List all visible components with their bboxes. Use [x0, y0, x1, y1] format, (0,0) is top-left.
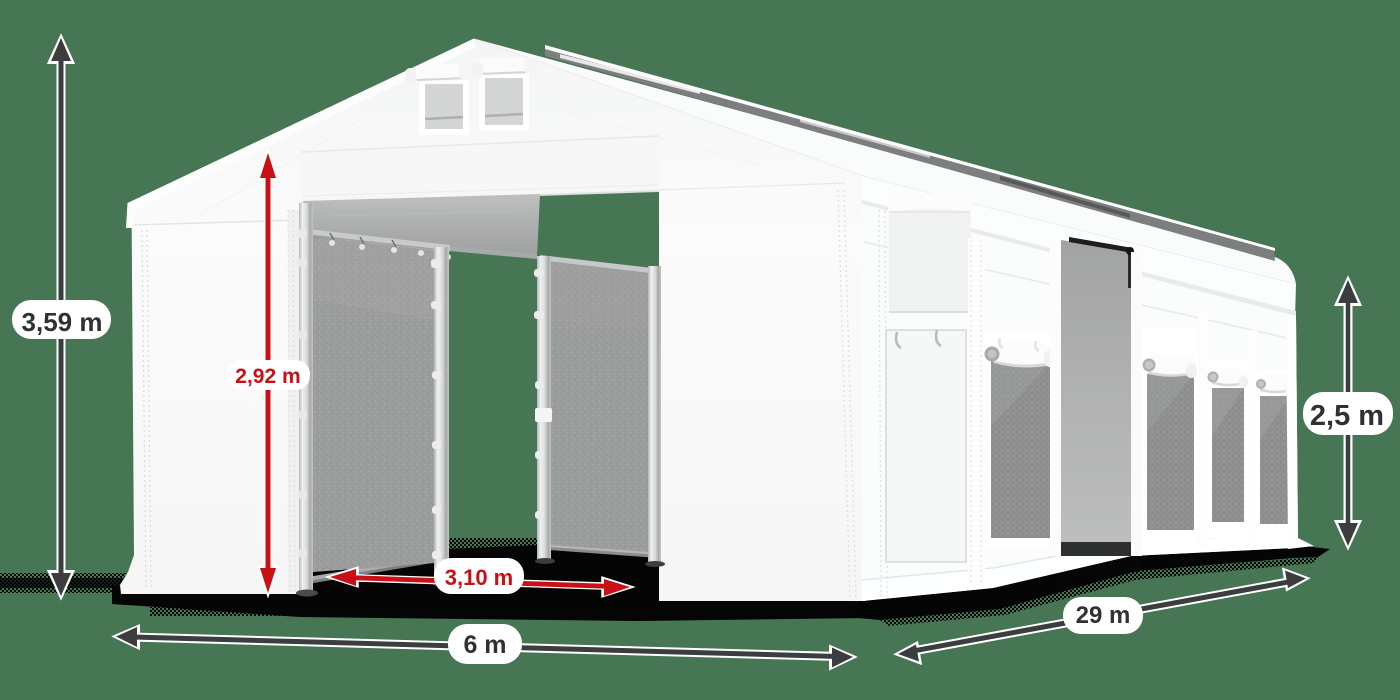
svg-text:2,92 m: 2,92 m — [235, 365, 300, 388]
svg-text:3,59 m: 3,59 m — [22, 307, 103, 337]
svg-text:2,5 m: 2,5 m — [1310, 400, 1384, 432]
svg-text:3,10 m: 3,10 m — [445, 565, 514, 590]
svg-text:6 m: 6 m — [463, 631, 506, 659]
svg-text:29 m: 29 m — [1076, 602, 1131, 629]
